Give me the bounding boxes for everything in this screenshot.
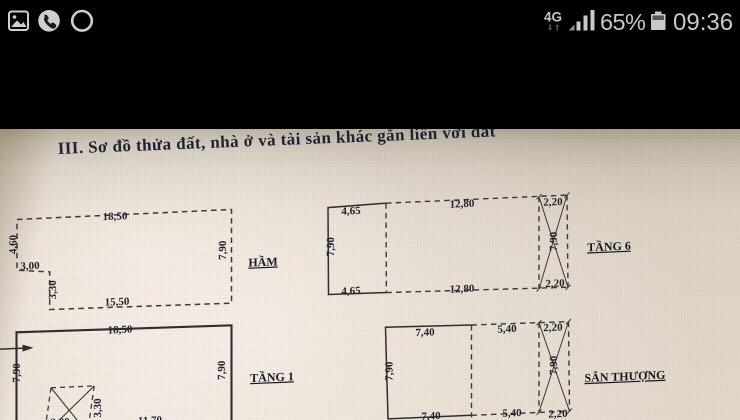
svg-text:65%: 65% — [600, 9, 646, 35]
svg-text:09:36: 09:36 — [673, 9, 733, 36]
svg-text:4G: 4G — [544, 10, 562, 25]
